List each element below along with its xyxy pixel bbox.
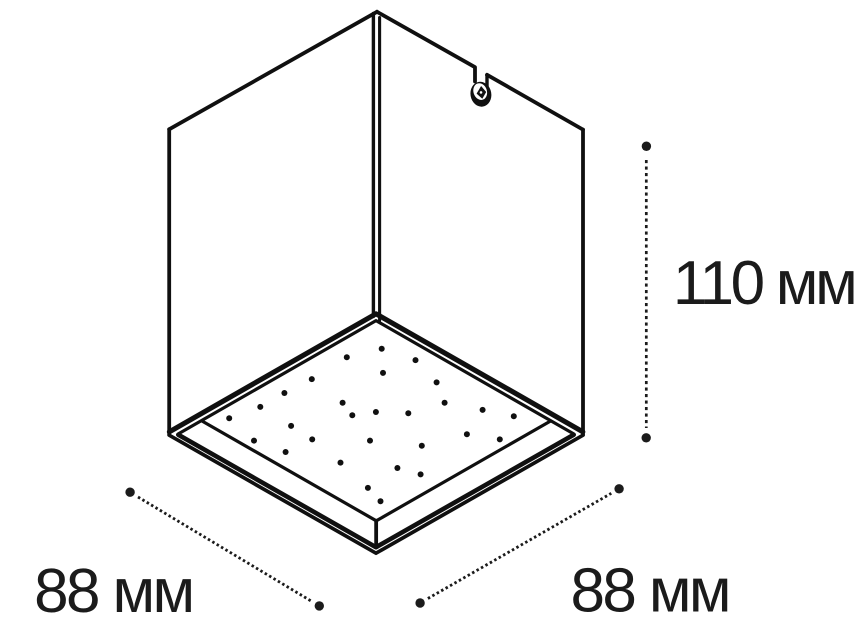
svg-text:88 мм: 88 мм	[34, 557, 192, 626]
svg-text:110 мм: 110 мм	[673, 249, 855, 318]
svg-text:88 мм: 88 мм	[571, 556, 729, 625]
